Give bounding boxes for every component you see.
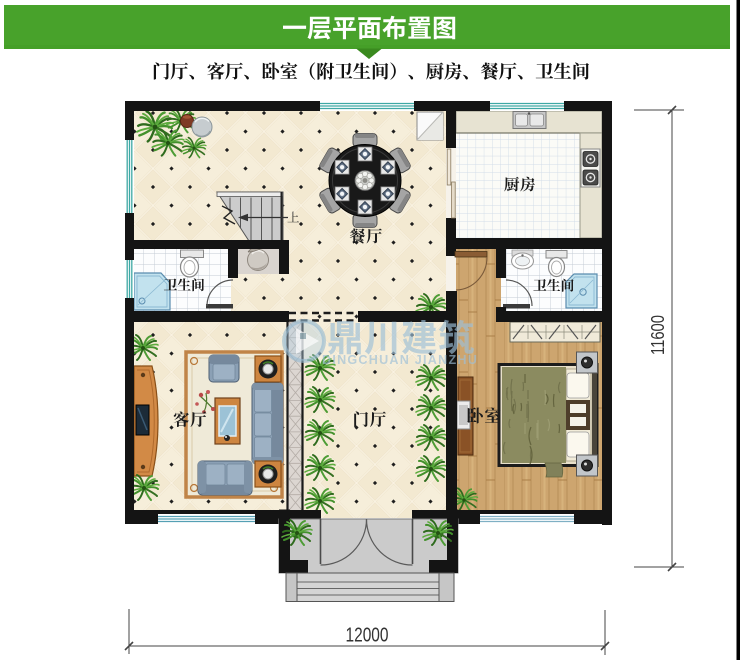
svg-text:DINGCHUAN JIANZHU: DINGCHUAN JIANZHU bbox=[322, 353, 478, 367]
svg-text:12000: 12000 bbox=[346, 625, 389, 647]
svg-text:11600: 11600 bbox=[648, 315, 668, 355]
